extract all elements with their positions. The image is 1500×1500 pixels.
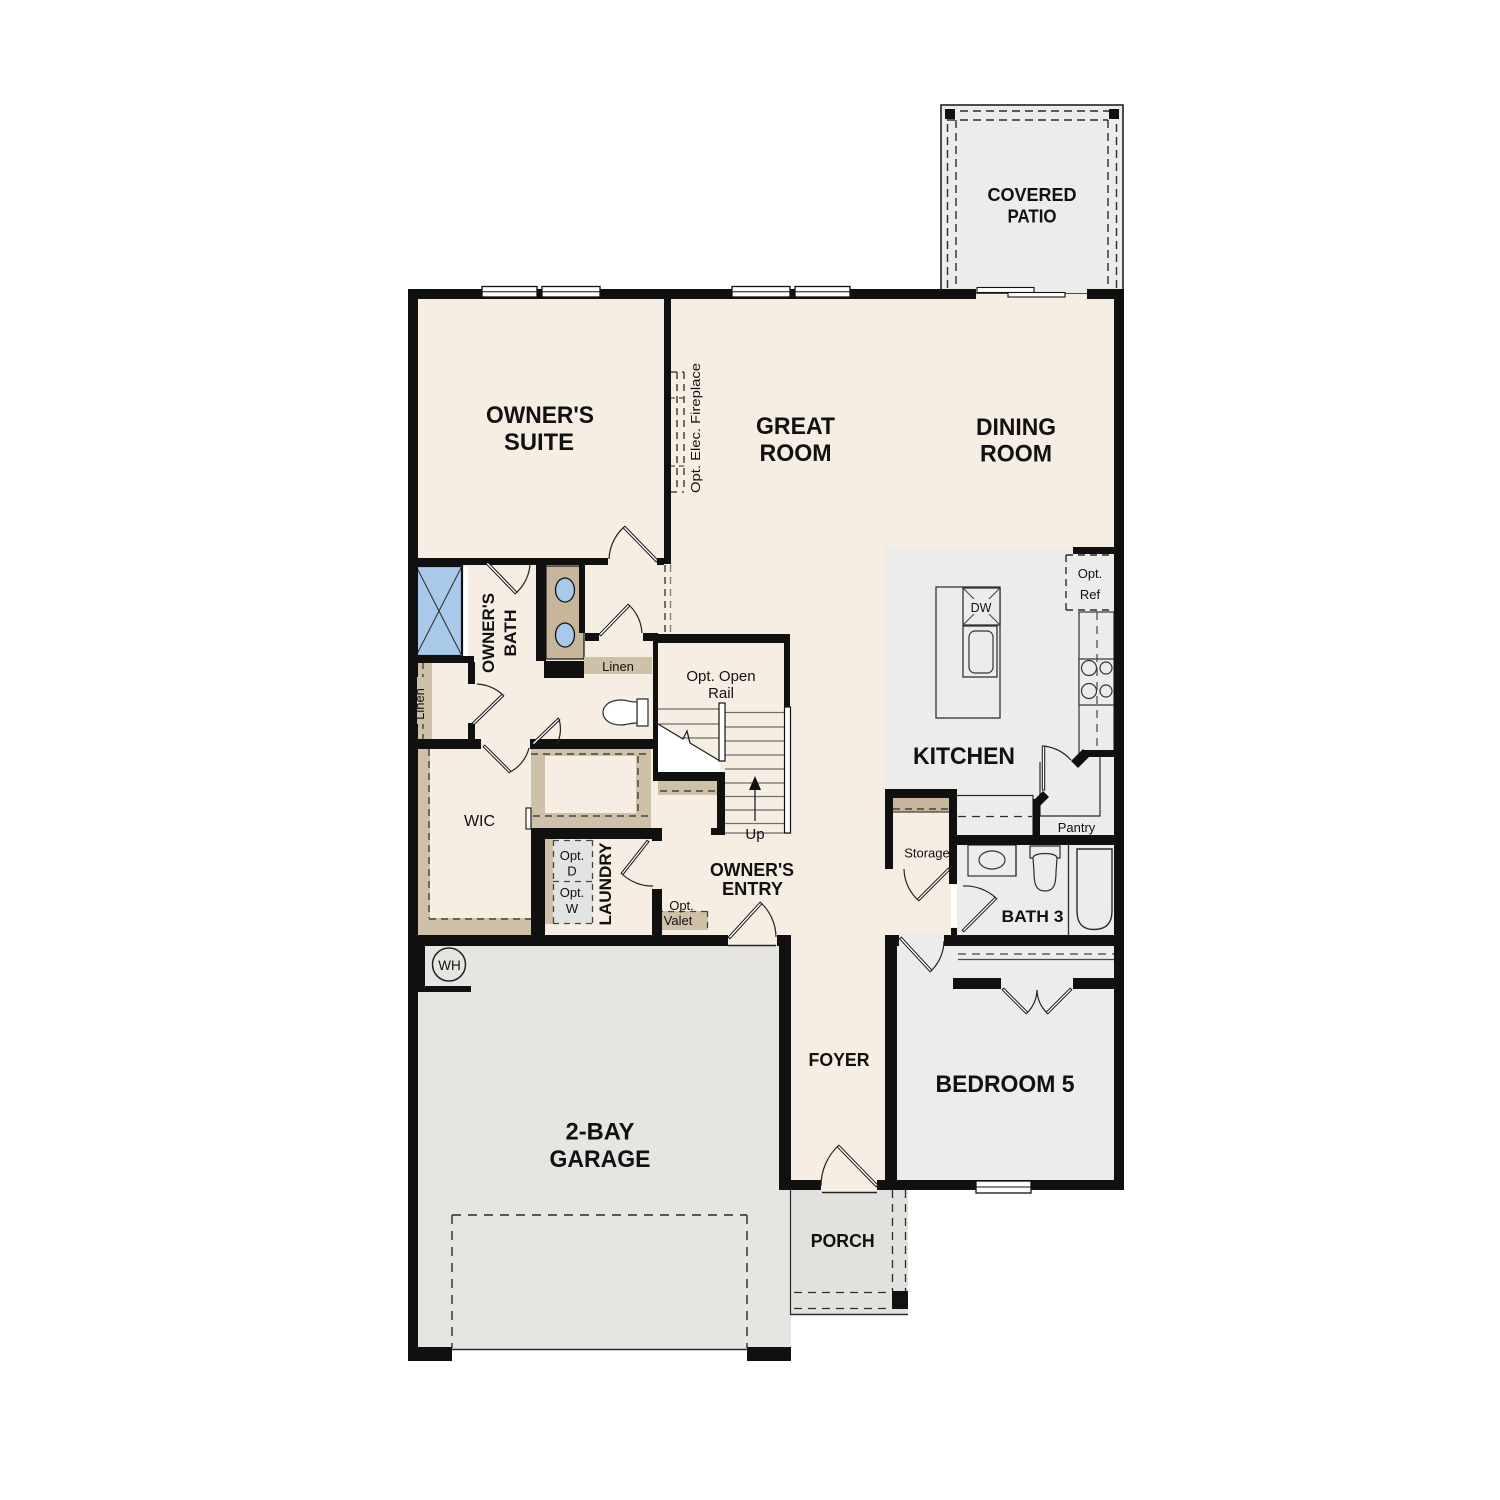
svg-text:Pantry: Pantry — [1058, 820, 1096, 835]
svg-text:FOYER: FOYER — [809, 1049, 871, 1070]
svg-text:Opt.: Opt. — [669, 898, 694, 913]
svg-text:PATIO: PATIO — [1008, 207, 1057, 227]
svg-text:Valet: Valet — [664, 913, 693, 928]
svg-text:2-BAY: 2-BAY — [566, 1119, 635, 1146]
svg-text:GARAGE: GARAGE — [550, 1146, 651, 1173]
svg-text:Ref: Ref — [1080, 587, 1101, 602]
svg-text:Opt.: Opt. — [1078, 566, 1103, 581]
svg-text:Opt.: Opt. — [560, 848, 585, 863]
svg-text:Linen: Linen — [602, 659, 634, 674]
svg-text:GREAT: GREAT — [756, 413, 835, 440]
svg-text:OWNER'S: OWNER'S — [486, 402, 594, 429]
svg-text:SUITE: SUITE — [504, 429, 574, 456]
svg-text:BATH: BATH — [501, 610, 520, 657]
svg-text:W: W — [566, 901, 579, 916]
svg-text:ROOM: ROOM — [980, 441, 1052, 468]
svg-text:D: D — [567, 864, 576, 879]
svg-text:Up: Up — [745, 826, 764, 843]
svg-text:Storage: Storage — [904, 846, 950, 861]
svg-text:ENTRY: ENTRY — [722, 878, 783, 899]
svg-text:Opt. Elec. Fireplace: Opt. Elec. Fireplace — [688, 363, 703, 493]
svg-text:WIC: WIC — [464, 813, 495, 830]
svg-text:DINING: DINING — [976, 414, 1056, 441]
svg-text:OWNER'S: OWNER'S — [479, 593, 498, 673]
svg-text:COVERED: COVERED — [988, 185, 1077, 205]
svg-text:Opt.: Opt. — [560, 885, 585, 900]
svg-text:WH: WH — [438, 958, 461, 973]
svg-text:KITCHEN: KITCHEN — [913, 743, 1015, 770]
svg-text:Rail: Rail — [708, 685, 734, 702]
svg-text:LAUNDRY: LAUNDRY — [596, 842, 615, 926]
svg-text:ROOM: ROOM — [760, 440, 832, 467]
svg-text:OWNER'S: OWNER'S — [710, 859, 794, 880]
svg-text:PORCH: PORCH — [811, 1230, 875, 1251]
svg-text:Opt. Open: Opt. Open — [686, 668, 755, 685]
svg-text:BEDROOM 5: BEDROOM 5 — [936, 1071, 1075, 1098]
svg-text:Linen: Linen — [412, 688, 427, 720]
svg-text:DW: DW — [971, 601, 992, 615]
svg-text:BATH 3: BATH 3 — [1002, 907, 1064, 926]
